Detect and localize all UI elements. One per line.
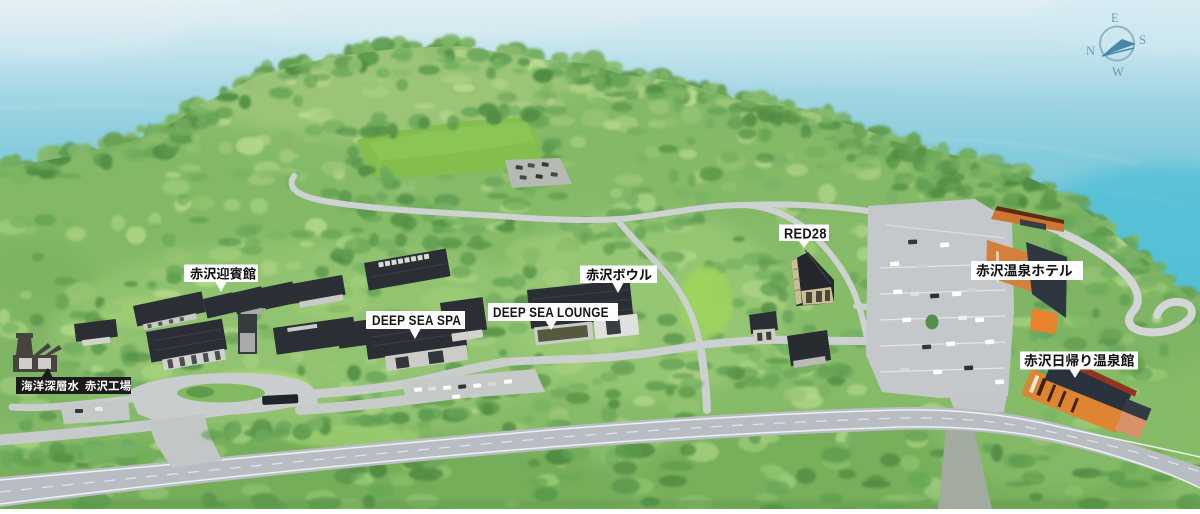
svg-text:W: W — [1112, 65, 1124, 79]
svg-text:E: E — [1111, 11, 1119, 25]
svg-text:DEEP SEA LOUNGE: DEEP SEA LOUNGE — [493, 305, 609, 320]
svg-text:RED28: RED28 — [784, 226, 827, 242]
svg-text:DEEP SEA SPA: DEEP SEA SPA — [372, 313, 461, 328]
svg-text:N: N — [1086, 44, 1095, 58]
svg-text:S: S — [1139, 33, 1146, 47]
